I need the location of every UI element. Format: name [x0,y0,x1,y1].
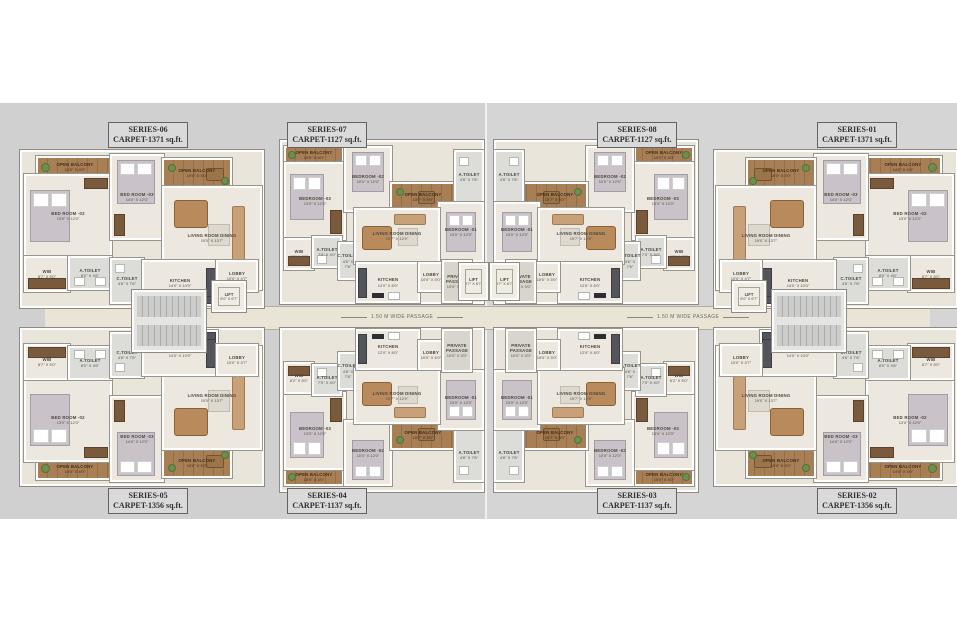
furniture-fix [893,350,904,359]
furniture-fix [95,350,106,359]
carpet-area: CARPET-1127 sq.ft. [602,135,671,145]
room-living-room-dining: LIVING ROOM DINING19'7" X 12'0" [354,368,440,424]
lift-left: LIFT8'0" X 6'7" [212,281,246,312]
furniture-stove [594,293,606,298]
room-a-toilet: A.TOILET4'6" X 7'6" [454,150,484,204]
furniture-plant [749,177,757,185]
room-bedroom-02: BEDROOM -0210'0" X 12'0" [344,420,392,486]
room-wib: WIB6'2" X 5'0" [664,238,694,270]
series-label-series-03: SERIES-03CARPET-1137 sq.ft. [597,488,677,514]
room-bedroom-03: BEDROOM -0313'0" X 12'0" [284,392,346,470]
furniture-dining [174,200,208,228]
furniture-bed [823,432,861,476]
room-bed-room-02: BED ROOM -0213'0" X 12'0" [24,378,112,462]
room-label: C.TOILET4'6" X 7'6" [622,244,638,278]
furniture-counter [358,334,367,364]
carpet-area: CARPET-1371 sq.ft. [113,135,183,145]
room-bedroom-02: BEDROOM -0210'0" X 12'0" [344,146,392,212]
room-bed-room-03: BED ROOM -0314'0" X 12'0" [110,154,164,240]
furniture-dining [362,226,392,250]
room-private-passage: PRIVATE PASSAGE10'0" X 3'0" [442,329,472,372]
carpet-area: CARPET-1356 sq.ft. [822,501,892,511]
furniture-fix [388,292,400,300]
furniture-ward [912,278,950,289]
room-open-balcony: OPEN BALCONY10'0" X 4'0" [284,468,344,486]
room-open-balcony: OPEN BALCONY19'0" X 5'0" [746,448,816,478]
furniture-table2 [754,455,772,468]
unit-series-08: OPEN BALCONY10'0" X 4'0"BEDROOM -0313'0"… [494,140,698,304]
furniture-ward [636,398,648,422]
furniture-bed [654,412,688,458]
room-open-balcony: OPEN BALCONY19'0" X 5'0" [162,158,232,188]
furniture-bed [117,160,155,204]
furniture-bed [446,380,476,420]
furniture-rug [208,224,230,246]
furniture-ward [28,278,66,289]
room-lobby: LOBBY10'0" X 4'7" [720,344,762,376]
room-label: PRIVATE PASSAGE10'0" X 3'0" [444,331,470,370]
furniture-fix [115,264,125,273]
furniture-plant [682,151,690,159]
series-label-series-05: SERIES-05CARPET-1356 sq.ft. [108,488,188,514]
furniture-plant [396,436,404,444]
carpet-area: CARPET-1127 sq.ft. [292,135,361,145]
furniture-table2 [543,191,560,204]
passage-label-left: 1.50 M WIDE PASSAGE [341,314,463,320]
furniture-plant [221,451,229,459]
furniture-dining [174,408,208,436]
passage-line [341,317,367,318]
series-label-series-02: SERIES-02CARPET-1356 sq.ft. [817,488,897,514]
room-label: LOBBY10'0" X 5'0" [420,264,442,290]
furniture-ward [330,398,342,422]
room-a-toilet: A.TOILET8'0" X 4'6" [866,346,910,380]
furniture-bed [594,440,626,480]
furniture-stove [372,293,384,298]
room-a-toilet: A.TOILET4'6" X 7'6" [494,150,524,204]
series-name: SERIES-07 [307,125,346,135]
furniture-counter [206,339,216,368]
series-name: SERIES-05 [128,491,167,501]
furniture-sofa [733,374,746,430]
furniture-fix [95,277,106,286]
furniture-dining [770,408,804,436]
room-a-toilet: A.TOILET7'0" X 4'0" [636,236,666,268]
lift-car-outline [496,269,513,294]
room-lobby: LOBBY10'0" X 5'0" [534,262,560,292]
furniture-dining [586,226,616,250]
series-name: SERIES-02 [837,491,876,501]
furniture-plant [288,151,296,159]
room-open-balcony: OPEN BALCONY19'0" X 5'0" [746,158,816,188]
room-label: LOBBY10'0" X 5'0" [420,342,442,368]
furniture-ward [668,366,690,376]
furniture-plant [682,473,690,481]
furniture-bed [823,160,861,204]
furniture-counter [611,268,620,298]
furniture-bed [908,190,948,242]
furniture-bed [117,432,155,476]
room-kitchen: KITCHEN12'0" X 8'0" [356,329,420,370]
unit-series-04: OPEN BALCONY10'0" X 4'0"BEDROOM -0313'0"… [280,328,484,492]
furniture-plant [396,188,404,196]
furniture-ward [870,178,894,189]
furniture-plant [41,464,50,473]
furniture-plant [574,436,582,444]
furniture-sofa [733,206,746,262]
furniture-plant [928,163,937,172]
lift-car-outline [738,287,760,306]
room-living-room-dining: LIVING ROOM DINING19'7" X 12'0" [538,208,624,264]
furniture-fix [317,368,327,377]
room-open-balcony: OPEN BALCONY19'0" X 5'0" [162,448,232,478]
carpet-area: CARPET-1356 sq.ft. [113,501,183,511]
room-bed-room-02: BED ROOM -0213'0" X 12'0" [24,174,112,258]
furniture-table2 [543,428,560,441]
furniture-dining [586,382,616,406]
furniture-fix [872,350,883,359]
furniture-rug [748,390,770,412]
carpet-area: CARPET-1371 sq.ft. [822,135,892,145]
room-kitchen: KITCHEN12'0" X 8'0" [558,262,622,303]
room-wib: WIB8'7" X 5'0" [908,344,954,380]
room-bed-room-03: BED ROOM -0314'0" X 12'0" [814,154,868,240]
floor-plan-canvas: 1.50 M WIDE PASSAGE 1.50 M WIDE PASSAGE … [0,0,957,625]
furniture-table2 [418,191,435,204]
furniture-stove [594,334,606,339]
furniture-fix [115,363,125,372]
room-a-toilet: A.TOILET8'0" X 4'6" [866,256,910,290]
passage-line [723,317,749,318]
room-label: LOBBY10'0" X 4'7" [218,346,256,374]
furniture-ward [28,347,66,358]
furniture-ward [853,214,864,236]
room-wib: WIB8'7" X 5'0" [24,256,70,292]
series-label-series-06: SERIES-06CARPET-1371 sq.ft. [108,122,188,148]
furniture-rug [560,228,580,246]
furniture-plant [749,451,757,459]
room-label: C.TOILET4'6" X 7'6" [622,354,638,388]
room-bedroom-03: BEDROOM -0313'0" X 12'0" [632,162,694,240]
room-a-toilet: A.TOILET8'0" X 4'6" [68,256,112,290]
furniture-fix [651,255,661,264]
furniture-ward [288,366,310,376]
room-open-balcony: OPEN BALCONY10'0" X 4'0" [634,468,694,486]
furniture-fix [74,277,85,286]
room-living-room-dining: LIVING ROOM DINING19'7" X 12'0" [354,208,440,264]
lift-car-outline [465,269,482,294]
furniture-bed [502,380,532,420]
furniture-plant [574,188,582,196]
furniture-sofah [552,407,584,418]
series-label-series-07: SERIES-07CARPET-1127 sq.ft. [287,122,367,148]
room-label: PRIVATE PASSAGE10'0" X 3'0" [508,331,534,370]
furniture-ward [84,178,108,189]
room-a-toilet: A.TOILET4'6" X 7'6" [494,428,524,482]
furniture-plant [802,464,810,472]
stair-flight [777,296,841,317]
furniture-rug [398,228,418,246]
passage-line [627,317,653,318]
room-wib: WIB8'7" X 5'0" [908,256,954,292]
furniture-counter [762,339,772,368]
unit-series-03: OPEN BALCONY10'0" X 4'0"BEDROOM -0313'0"… [494,328,698,492]
passage-line [437,317,463,318]
room-bed-room-03: BED ROOM -0314'0" X 12'0" [110,396,164,482]
lift-center-right: LIFT8'7" X 6'7" [490,263,519,300]
room-a-toilet: A.TOILET8'0" X 4'6" [68,346,112,380]
stair-flight [137,325,201,346]
room-bedroom-03: BEDROOM -0313'0" X 12'0" [284,162,346,240]
room-bedroom-03: BEDROOM -0313'0" X 12'0" [632,392,694,470]
furniture-fix [459,157,469,166]
furniture-rug [560,386,580,404]
room-wib: WIB6'2" X 5'0" [664,362,694,394]
staircase-left [132,290,206,352]
room-bedroom-01: BEDROOM -0110'0" X 12'0" [438,202,484,262]
furniture-fix [509,157,519,166]
furniture-counter [358,268,367,298]
room-bedroom-02: BEDROOM -0210'0" X 12'0" [586,420,634,486]
furniture-plant [221,177,229,185]
furniture-ward [853,400,864,422]
furniture-fix [74,350,85,359]
furniture-fix [388,332,400,340]
furniture-ward [288,256,310,266]
furniture-plant [288,473,296,481]
furniture-fix [509,466,519,475]
furniture-ward [84,447,108,458]
furniture-fix [872,277,883,286]
room-lobby: LOBBY10'0" X 5'0" [418,340,444,370]
furniture-bed [352,440,384,480]
furniture-sofa [232,206,245,262]
furniture-table2 [418,428,435,441]
furniture-plant [802,164,810,172]
room-lobby: LOBBY10'0" X 5'0" [534,340,560,370]
room-bed-room-02: BED ROOM -0213'0" X 12'0" [866,378,954,462]
furniture-bed [446,212,476,252]
furniture-fix [651,368,661,377]
furniture-plant [41,163,50,172]
room-a-toilet: A.TOILET7'0" X 4'0" [636,364,666,396]
lift-center-left: LIFT8'7" X 6'7" [459,263,488,300]
furniture-bed [290,174,324,220]
series-name: SERIES-04 [307,491,346,501]
furniture-fix [853,264,863,273]
furniture-ward [114,400,125,422]
room-lobby: LOBBY10'0" X 5'0" [418,262,444,292]
furniture-bed [654,174,688,220]
furniture-sofah [394,214,426,225]
furniture-sofah [394,407,426,418]
carpet-area: CARPET-1137 sq.ft. [292,501,361,511]
furniture-ward [870,447,894,458]
series-label-series-08: SERIES-08CARPET-1127 sq.ft. [597,122,677,148]
passage-label-right: 1.50 M WIDE PASSAGE [627,314,749,320]
furniture-sofa [232,374,245,430]
furniture-plant [928,464,937,473]
room-kitchen: KITCHEN12'0" X 8'0" [558,329,622,370]
room-bedroom-02: BEDROOM -0210'0" X 12'0" [586,146,634,212]
unit-series-07: OPEN BALCONY10'0" X 4'0"BEDROOM -0313'0"… [280,140,484,304]
room-label: LOBBY10'0" X 5'0" [536,342,558,368]
stair-flight [137,296,201,317]
furniture-ward [912,347,950,358]
room-kitchen: KITCHEN12'0" X 8'0" [356,262,420,303]
room-wib: WIB6'2" X 5'0" [284,362,314,394]
room-bedroom-01: BEDROOM -0110'0" X 12'0" [494,370,540,430]
lift-right: LIFT8'0" X 6'7" [732,281,766,312]
furniture-sofah [552,214,584,225]
lift-car-outline [218,287,240,306]
room-a-toilet: A.TOILET4'6" X 7'6" [454,428,484,482]
room-living-room-dining: LIVING ROOM DINING19'7" X 12'0" [538,368,624,424]
room-label: LOBBY10'0" X 5'0" [536,264,558,290]
furniture-rug [398,386,418,404]
furniture-bed [30,190,70,242]
furniture-rug [208,390,230,412]
series-name: SERIES-06 [128,125,167,135]
series-label-series-01: SERIES-01CARPET-1371 sq.ft. [817,122,897,148]
series-label-series-04: SERIES-04CARPET-1137 sq.ft. [287,488,367,514]
furniture-fix [578,292,590,300]
furniture-bed [290,412,324,458]
room-wib: WIB6'2" X 5'0" [284,238,314,270]
furniture-fix [578,332,590,340]
series-name: SERIES-03 [617,491,656,501]
stair-flight [777,325,841,346]
furniture-ward [330,210,342,234]
furniture-plant [168,164,176,172]
series-name: SERIES-01 [837,125,876,135]
furniture-plant [168,464,176,472]
furniture-fix [853,363,863,372]
room-label: LOBBY10'0" X 4'7" [722,346,760,374]
room-bed-room-02: BED ROOM -0213'0" X 12'0" [866,174,954,258]
furniture-dining [362,382,392,406]
furniture-ward [114,214,125,236]
furniture-bed [502,212,532,252]
furniture-dining [770,200,804,228]
furniture-fix [317,255,327,264]
furniture-stove [372,334,384,339]
furniture-bed [594,152,626,192]
furniture-fix [459,466,469,475]
furniture-counter [611,334,620,364]
room-bedroom-01: BEDROOM -0110'0" X 12'0" [438,370,484,430]
furniture-bed [908,394,948,446]
room-lobby: LOBBY10'0" X 4'7" [216,344,258,376]
room-wib: WIB8'7" X 5'0" [24,344,70,380]
room-private-passage: PRIVATE PASSAGE10'0" X 3'0" [506,329,536,372]
series-name: SERIES-08 [617,125,656,135]
room-bedroom-01: BEDROOM -0110'0" X 12'0" [494,202,540,262]
staircase-right [772,290,846,352]
room-bed-room-03: BED ROOM -0314'0" X 12'0" [814,396,868,482]
furniture-fix [893,277,904,286]
furniture-ward [668,256,690,266]
carpet-area: CARPET-1137 sq.ft. [602,501,671,511]
furniture-bed [30,394,70,446]
furniture-ward [636,210,648,234]
furniture-bed [352,152,384,192]
furniture-rug [748,224,770,246]
